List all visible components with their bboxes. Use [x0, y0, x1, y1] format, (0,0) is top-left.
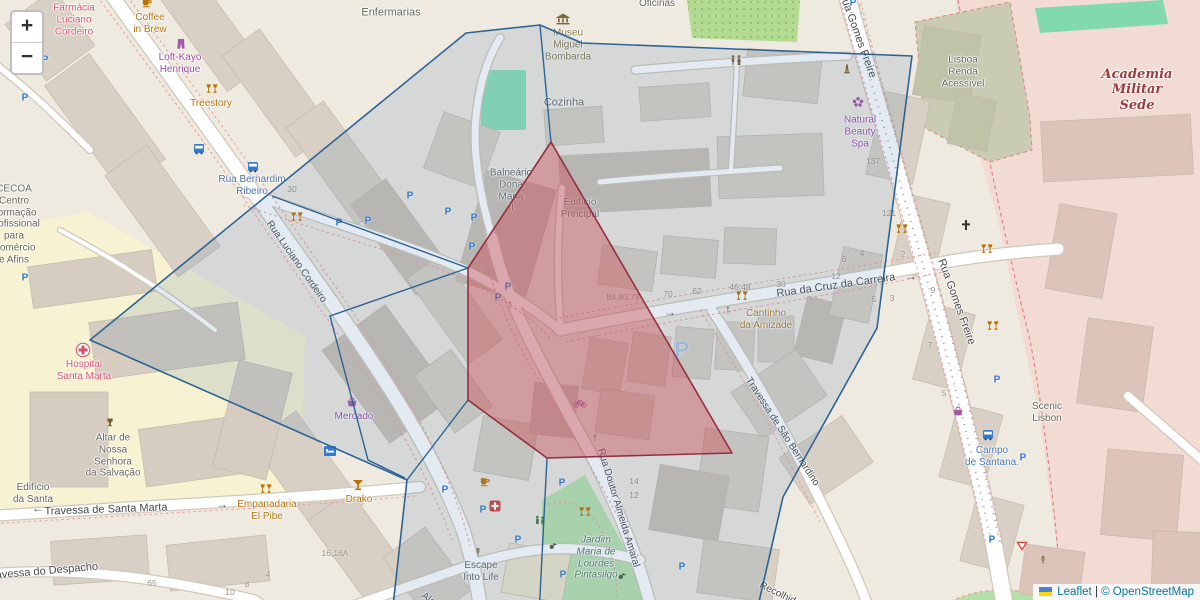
openstreetmap-link[interactable]: © OpenStreetMap — [1101, 586, 1194, 598]
ukraine-flag-icon — [1039, 587, 1052, 596]
zoom-control: + − — [10, 10, 44, 75]
zoom-in-button[interactable]: + — [12, 12, 42, 43]
map-canvas[interactable]: Rua Luciano CordeiroRua da Cruz da Carre… — [0, 0, 1200, 600]
zoom-out-button[interactable]: − — [12, 43, 42, 73]
attribution-separator: | — [1092, 586, 1101, 598]
overlay-layer — [0, 0, 1200, 600]
attribution-bar: Leaflet | © OpenStreetMap — [1033, 584, 1200, 600]
leaflet-link[interactable]: Leaflet — [1057, 586, 1092, 598]
